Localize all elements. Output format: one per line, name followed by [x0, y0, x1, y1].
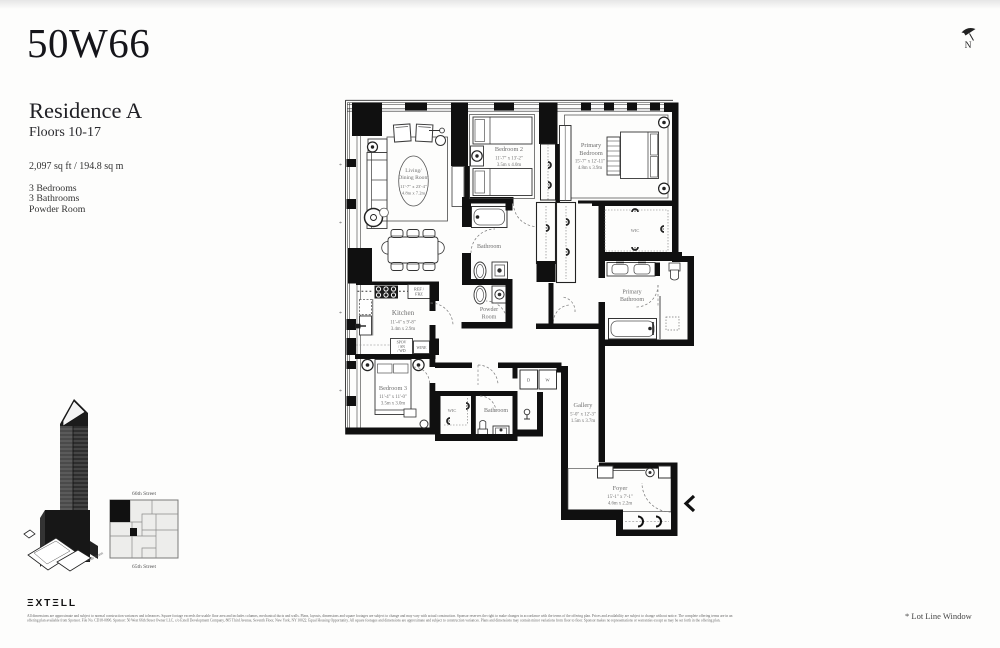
svg-text:Bathroom: Bathroom: [620, 297, 644, 303]
svg-text:4.6m x 2.2m: 4.6m x 2.2m: [608, 502, 633, 507]
svg-text:1.5m x 3.7m: 1.5m x 3.7m: [571, 419, 596, 424]
svg-text:15'-7" x 12'-11": 15'-7" x 12'-11": [575, 160, 605, 165]
svg-text:*: *: [339, 389, 342, 395]
svg-text:65th Street: 65th Street: [132, 564, 156, 570]
svg-text:11'-4" x 11'-0": 11'-4" x 11'-0": [379, 395, 407, 400]
svg-text:15'-1" x 7'-1": 15'-1" x 7'-1": [607, 495, 633, 500]
svg-text:Powder: Powder: [480, 307, 498, 313]
svg-text:Bedroom: Bedroom: [579, 150, 603, 157]
svg-text:Dining Room: Dining Room: [398, 175, 429, 181]
svg-text:Room: Room: [482, 315, 497, 321]
svg-text:/ WD: / WD: [397, 349, 406, 353]
svg-text:FRZ: FRZ: [415, 292, 423, 297]
svg-text:11'-4" x 9'-8": 11'-4" x 9'-8": [390, 321, 415, 326]
svg-text:66th Street: 66th Street: [132, 491, 156, 497]
svg-text:4.8m x 7.2m: 4.8m x 7.2m: [402, 191, 426, 196]
svg-text:Living/: Living/: [405, 168, 422, 174]
svg-text:Primary: Primary: [622, 290, 641, 296]
svg-text:W: W: [545, 378, 550, 383]
svg-text:3.4m x 2.9m: 3.4m x 2.9m: [391, 327, 416, 332]
svg-text:11'-7" x 13'-2": 11'-7" x 13'-2": [495, 157, 523, 162]
svg-text:WIC: WIC: [448, 408, 457, 413]
svg-text:N: N: [965, 41, 972, 51]
svg-text:5'-0" x 12'-3": 5'-0" x 12'-3": [570, 413, 596, 418]
svg-text:Kitchen: Kitchen: [392, 309, 415, 317]
svg-text:*: *: [339, 311, 342, 317]
svg-text:Gallery: Gallery: [574, 402, 594, 409]
svg-text:Foyer: Foyer: [613, 485, 629, 492]
svg-text:ΞXTΞLL: ΞXTΞLL: [27, 598, 77, 609]
svg-text:offering plan available from S: offering plan available from Sponsor. Fi…: [27, 619, 720, 624]
svg-text:Bedroom 3: Bedroom 3: [379, 385, 407, 392]
svg-text:3.5m x 4.0m: 3.5m x 4.0m: [497, 163, 522, 168]
svg-text:WIC: WIC: [631, 228, 640, 233]
svg-text:3.5m x 3.0m: 3.5m x 3.0m: [381, 402, 406, 407]
svg-text:*: *: [339, 163, 342, 169]
svg-text:Bedroom 2: Bedroom 2: [495, 146, 523, 153]
svg-text:WINE: WINE: [417, 346, 428, 350]
svg-text:4.8m x 3.9m: 4.8m x 3.9m: [578, 166, 603, 171]
svg-text:*: *: [339, 221, 342, 227]
svg-text:Bathroom: Bathroom: [477, 244, 501, 250]
svg-text:Primary: Primary: [581, 142, 602, 149]
svg-text:11'-7" x 23'-4": 11'-7" x 23'-4": [400, 184, 427, 189]
